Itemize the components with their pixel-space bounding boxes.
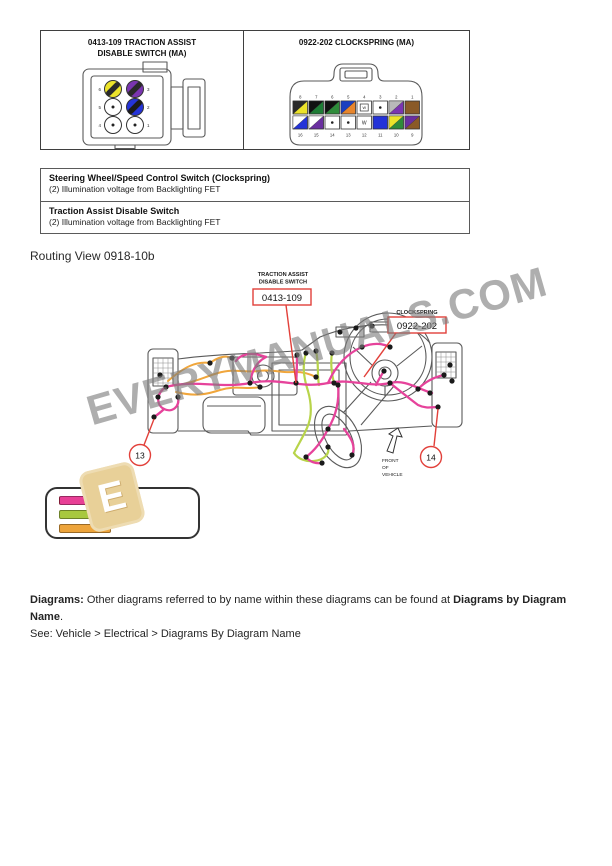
callout-14: 14 — [421, 409, 442, 468]
pin-number: 8 — [299, 95, 302, 100]
pin-number: 15 — [314, 133, 319, 138]
pin-dot — [112, 106, 115, 109]
routing-view-label: Routing View 0918-10b — [30, 249, 155, 263]
footer-period: . — [60, 611, 63, 623]
harness-connector-dot — [353, 325, 358, 330]
harness-connector-dot — [303, 454, 308, 459]
description-detail: (2) Illumination voltage from Backlighti… — [49, 184, 461, 194]
pin-dot — [347, 121, 350, 124]
harness-connector-dot — [294, 352, 299, 357]
pin-number: 4 — [363, 95, 366, 100]
description-row-clockspring: Steering Wheel/Speed Control Switch (Clo… — [41, 169, 469, 201]
harness-connector-dot — [229, 355, 234, 360]
pin-number: 9 — [411, 133, 414, 138]
pin-number: 5 — [98, 105, 101, 110]
harness-connector-dot — [325, 426, 330, 431]
pin-number: 4 — [98, 123, 101, 128]
harness-connector-dot — [329, 350, 334, 355]
pin-dot — [134, 124, 137, 127]
footer-line-1: Diagrams: Other diagrams referred to by … — [30, 592, 590, 626]
pin-number: 3 — [147, 87, 150, 92]
traction-label-line1: TRACTION ASSIST — [258, 272, 309, 278]
harness-connector-dot — [313, 374, 318, 379]
pin-dot — [331, 121, 334, 124]
harness-connector-dot — [175, 394, 180, 399]
footer-text-mid: Other diagrams referred to by name withi… — [84, 594, 453, 606]
harness-connector-dot — [447, 362, 452, 367]
description-row-traction: Traction Assist Disable Switch (2) Illum… — [41, 201, 469, 233]
traction-connector-housing — [83, 62, 205, 149]
connector-title-clockspring: 0922-202 CLOCKSPRING (MA) — [244, 37, 469, 48]
harness-connector-dot — [303, 350, 308, 355]
pin-number: 13 — [346, 133, 351, 138]
pin-number: 14 — [330, 133, 335, 138]
pin-cell — [405, 101, 420, 114]
footer-diagrams-label: Diagrams: — [30, 594, 84, 606]
pin-dot — [379, 106, 382, 109]
traction-code: 0413-109 — [262, 293, 302, 304]
clockspring-code: 0922-202 — [397, 321, 437, 332]
harness-connector-dot — [359, 344, 364, 349]
pin-number: 2 — [147, 105, 150, 110]
connector-cell-clockspring: 0922-202 CLOCKSPRING (MA) 8765W432116151… — [244, 31, 469, 149]
pin-number: 12 — [362, 133, 367, 138]
harness-connector-dot — [331, 380, 336, 385]
front-of-vehicle-label: FRONT OF VEHICLE — [382, 428, 403, 478]
traction-label-line2: DISABLE SWITCH — [259, 280, 307, 286]
harness-connector-dot — [157, 372, 162, 377]
pin-number: 7 — [315, 95, 318, 100]
pin-number: 11 — [378, 133, 383, 138]
pin-number: 6 — [331, 95, 334, 100]
connector-title-line1: 0413-109 TRACTION ASSIST — [41, 37, 243, 48]
front-arrow-icon — [387, 428, 402, 453]
harness-connector-dot — [313, 348, 318, 353]
harness-connector-dot — [387, 380, 392, 385]
callout-14-number: 14 — [426, 453, 436, 463]
pin-dot — [112, 124, 115, 127]
harness-connector-dot — [151, 414, 156, 419]
harness-connector-dot — [449, 378, 454, 383]
connector-cell-traction: 0413-109 TRACTION ASSIST DISABLE SWITCH … — [41, 31, 244, 149]
description-detail: (2) Illumination voltage from Backlighti… — [49, 217, 461, 227]
pin-number: 5 — [347, 95, 350, 100]
harness-connector-dot — [337, 329, 342, 334]
connector-table: 0413-109 TRACTION ASSIST DISABLE SWITCH … — [40, 30, 470, 150]
harness-connector-dot — [441, 372, 446, 377]
circuit-description-table: Steering Wheel/Speed Control Switch (Clo… — [40, 168, 470, 234]
footer-line-2: See: Vehicle > Electrical > Diagrams By … — [30, 626, 590, 643]
harness-connector-dot — [247, 380, 252, 385]
pin-number: 3 — [379, 95, 382, 100]
front-label-line2: OF — [382, 465, 389, 471]
pin-letter: W — [362, 106, 366, 110]
callout-13-number: 13 — [135, 451, 145, 461]
harness-connector-dot — [257, 384, 262, 389]
pin-number: 2 — [395, 95, 398, 100]
harness-connector-dot — [427, 390, 432, 395]
front-label-line1: FRONT — [382, 458, 399, 464]
front-label-line3: VEHICLE — [382, 472, 403, 478]
harness-connector-dot — [381, 368, 386, 373]
description-title: Traction Assist Disable Switch — [49, 206, 461, 216]
harness-connector-dot — [369, 323, 374, 328]
description-title: Steering Wheel/Speed Control Switch (Clo… — [49, 173, 461, 183]
manual-page: 0413-109 TRACTION ASSIST DISABLE SWITCH … — [0, 0, 612, 866]
traction-callout-label: TRACTION ASSIST DISABLE SWITCH 0413-109 — [253, 272, 311, 383]
pin-number: 1 — [147, 123, 150, 128]
pin-cell — [373, 116, 388, 129]
pin-number: 10 — [394, 133, 399, 138]
harness-connector-dot — [349, 452, 354, 457]
clockspring-connector-drawing: 8765W432116151413W1211109 — [244, 59, 469, 149]
harness-connector-dot — [415, 386, 420, 391]
harness-connector-dot — [435, 404, 440, 409]
callout-13: 13 — [130, 419, 155, 466]
clockspring-label-line1: CLOCKSPRING — [396, 310, 437, 316]
pin-number: 6 — [98, 87, 101, 92]
harness-connector-dot — [207, 360, 212, 365]
clockspring-connector-pins: 8765W432116151413W1211109 — [293, 95, 420, 138]
callout-13-leader — [144, 419, 154, 445]
traction-connector-pins: 635241 — [98, 81, 150, 134]
harness-connector-dot — [325, 444, 330, 449]
traction-connector-drawing: 635241 — [41, 59, 244, 149]
pin-number: 16 — [298, 133, 303, 138]
pin-letter: W — [362, 120, 367, 126]
harness-connector-dot — [319, 460, 324, 465]
harness-connector-dot — [387, 344, 392, 349]
harness-connector-dot — [155, 394, 160, 399]
pin-number: 1 — [411, 95, 414, 100]
harness-connector-dot — [163, 384, 168, 389]
watermark-logo-letter: E — [94, 472, 131, 522]
footer-text: Diagrams: Other diagrams referred to by … — [30, 592, 590, 643]
connector-title-traction: 0413-109 TRACTION ASSIST DISABLE SWITCH … — [41, 37, 243, 59]
connector-title-line2: DISABLE SWITCH (MA) — [41, 48, 243, 59]
